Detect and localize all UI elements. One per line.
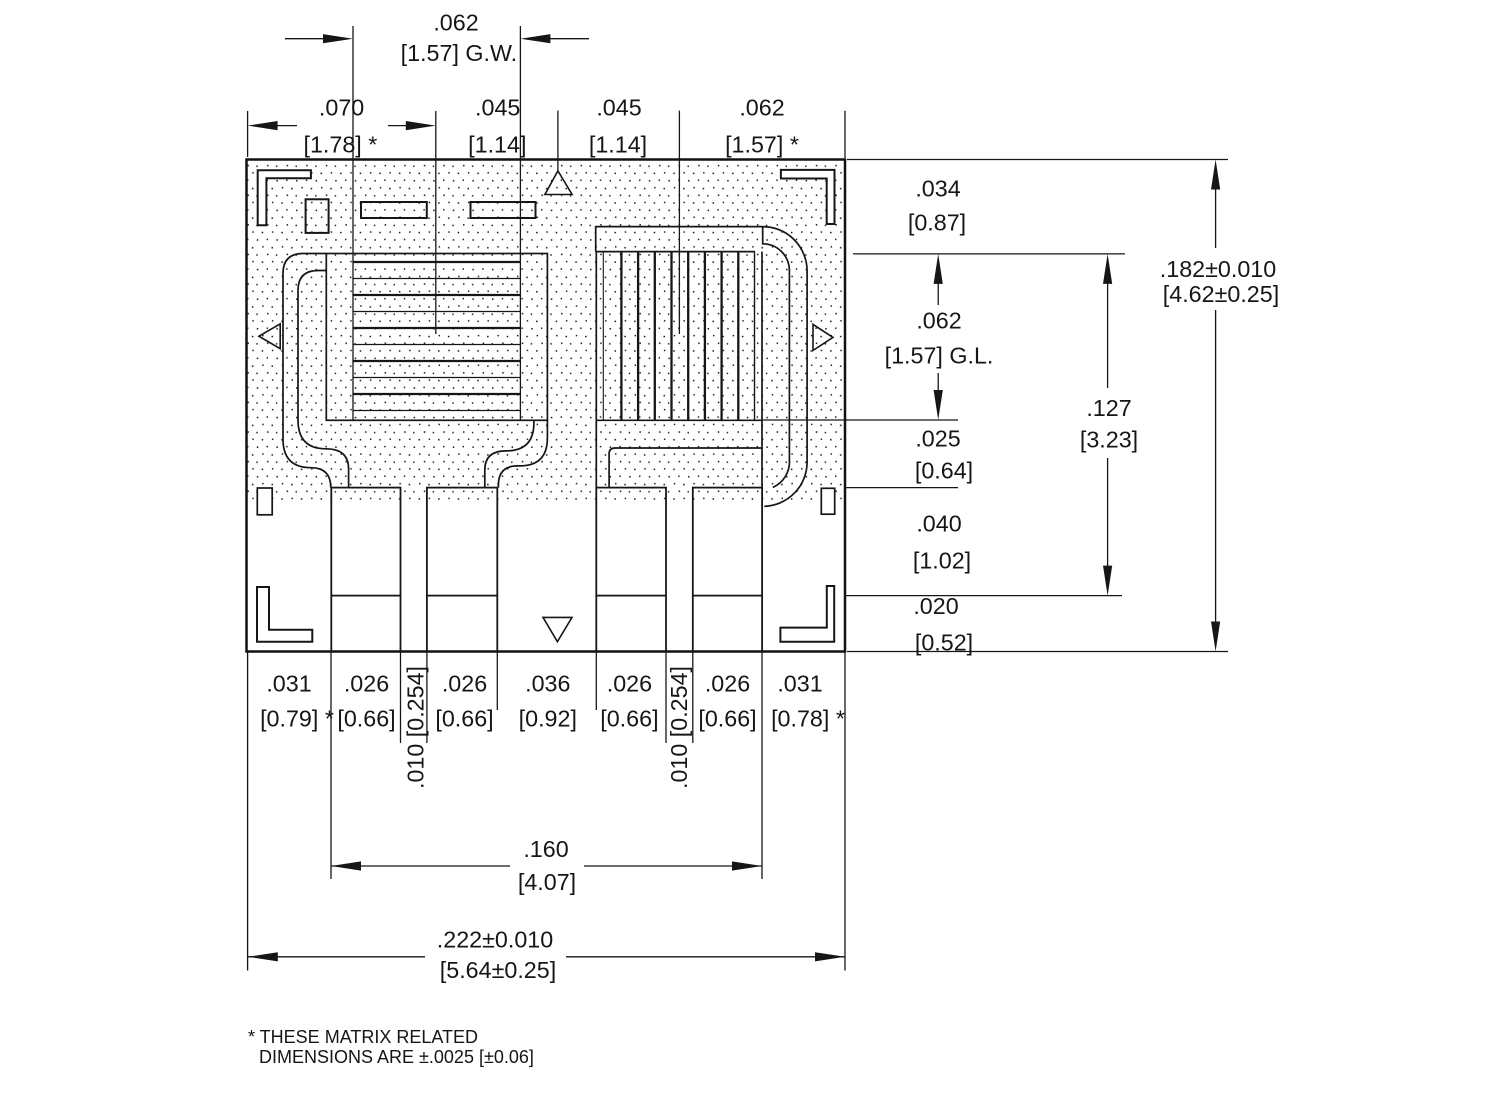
svg-text:.160: .160 xyxy=(523,836,568,862)
svg-text:[1.57] *: [1.57] * xyxy=(725,131,799,157)
svg-text:.026: .026 xyxy=(344,670,389,696)
svg-text:.031: .031 xyxy=(777,670,822,696)
svg-text:.025: .025 xyxy=(915,425,960,451)
svg-text:.222±0.010: .222±0.010 xyxy=(437,927,553,953)
svg-text:.036: .036 xyxy=(525,670,570,696)
svg-text:.040: .040 xyxy=(916,510,961,536)
svg-text:[0.66]: [0.66] xyxy=(698,705,756,731)
svg-text:DIMENSIONS ARE ±.0025 [±0.06]: DIMENSIONS ARE ±.0025 [±0.06] xyxy=(259,1047,534,1067)
svg-text:.026: .026 xyxy=(442,670,487,696)
svg-text:.010 [0.254]: .010 [0.254] xyxy=(403,666,429,789)
svg-text:[0.64]: [0.64] xyxy=(915,457,973,483)
svg-text:.026: .026 xyxy=(607,670,652,696)
svg-text:[1.14]: [1.14] xyxy=(589,131,647,157)
svg-text:.026: .026 xyxy=(705,670,750,696)
svg-text:[0.52]: [0.52] xyxy=(915,629,973,655)
svg-text:[1.14]: [1.14] xyxy=(468,131,526,157)
svg-text:* THESE MATRIX RELATED: * THESE MATRIX RELATED xyxy=(248,1027,478,1047)
svg-text:.062: .062 xyxy=(916,307,961,333)
svg-text:[0.87]: [0.87] xyxy=(908,209,966,235)
svg-text:.062: .062 xyxy=(739,95,784,121)
svg-text:[5.64±0.25]: [5.64±0.25] xyxy=(440,957,556,983)
svg-text:[0.66]: [0.66] xyxy=(337,705,395,731)
svg-text:.182±0.010: .182±0.010 xyxy=(1160,256,1276,282)
svg-text:.062: .062 xyxy=(433,9,478,35)
svg-text:[1.78] *: [1.78] * xyxy=(303,131,377,157)
svg-text:.045: .045 xyxy=(596,95,641,121)
svg-text:[3.23]: [3.23] xyxy=(1080,426,1138,452)
svg-text:[4.07]: [4.07] xyxy=(518,869,576,895)
svg-text:[0.92]: [0.92] xyxy=(519,705,577,731)
svg-text:[0.79] *: [0.79] * xyxy=(260,705,334,731)
svg-text:[4.62±0.25]: [4.62±0.25] xyxy=(1163,281,1279,307)
svg-text:.127: .127 xyxy=(1086,395,1131,421)
svg-text:[0.78] *: [0.78] * xyxy=(771,705,845,731)
svg-text:.070: .070 xyxy=(319,95,364,121)
svg-text:[0.66]: [0.66] xyxy=(600,705,658,731)
svg-text:.020: .020 xyxy=(913,593,958,619)
svg-text:[1.57] G.W.: [1.57] G.W. xyxy=(401,40,518,66)
svg-text:.045: .045 xyxy=(475,95,520,121)
svg-text:.034: .034 xyxy=(915,175,960,201)
svg-text:[1.57] G.L.: [1.57] G.L. xyxy=(885,342,994,368)
svg-text:.010 [0.254]: .010 [0.254] xyxy=(666,666,692,789)
svg-text:[0.66]: [0.66] xyxy=(435,705,493,731)
svg-text:[1.02]: [1.02] xyxy=(913,547,971,573)
svg-text:.031: .031 xyxy=(266,670,311,696)
